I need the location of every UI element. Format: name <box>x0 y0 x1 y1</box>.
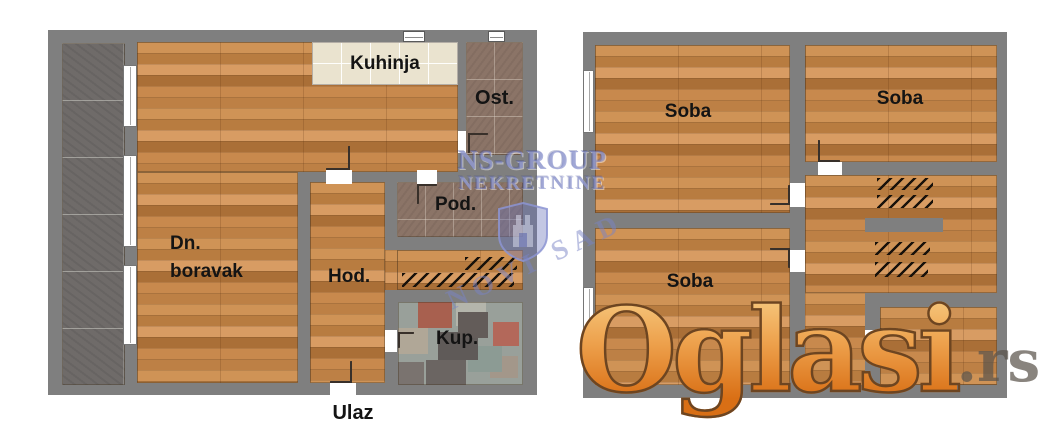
pantry-label: Ost. <box>475 87 514 110</box>
window-kitchen-vent <box>403 31 425 42</box>
agency-watermark: NS-GROUP NEKRETNINE <box>420 146 645 195</box>
radiator-right-4 <box>875 262 928 277</box>
door-gap-room-bottom <box>790 250 805 272</box>
window-living-bottom <box>123 265 137 345</box>
partition-wall <box>865 218 943 232</box>
terrace-door <box>123 155 137 247</box>
door-gap-room-top-left <box>790 183 805 207</box>
window-room-top-left <box>583 70 594 133</box>
window-pantry-vent <box>488 31 505 42</box>
radiator-right-1 <box>877 178 933 190</box>
agency-name: NS-GROUP <box>420 146 645 174</box>
kitchen-floor: Kuhinja <box>312 42 458 85</box>
room-top-right-label: Soba <box>877 88 923 110</box>
storage-label: Pod. <box>435 194 476 216</box>
radiator-right-3 <box>875 242 930 255</box>
door-gap-bathroom <box>385 330 397 352</box>
radiator-right-2 <box>877 195 933 208</box>
door-gap-room-top-right <box>818 162 842 175</box>
terrace-floor <box>62 43 125 385</box>
entrance-label: Ulaz <box>318 402 388 425</box>
kitchen-label: Kuhinja <box>350 53 420 75</box>
left-floorplan: Kuhinja Ost. <box>48 30 537 395</box>
hallway-link-floor <box>385 250 397 290</box>
living-room-label: Dn. boravak <box>170 230 243 285</box>
hallway-label: Hod. <box>328 266 370 288</box>
oglasi-logo-text: Oglasi <box>576 283 957 419</box>
agency-subtitle: NEKRETNINE <box>420 174 645 195</box>
door-gap-entrance <box>330 383 356 395</box>
window-living-top <box>123 65 137 127</box>
oglasi-logo-tld: .rs <box>957 327 1040 395</box>
oglasi-logo: Oglasi.rs <box>576 293 1040 409</box>
door-gap-living <box>326 170 352 184</box>
floorplan-image: Kuhinja Ost. <box>0 0 1057 447</box>
room-top-left-label: Soba <box>665 101 711 123</box>
bathroom-label: Kup. <box>436 328 478 350</box>
